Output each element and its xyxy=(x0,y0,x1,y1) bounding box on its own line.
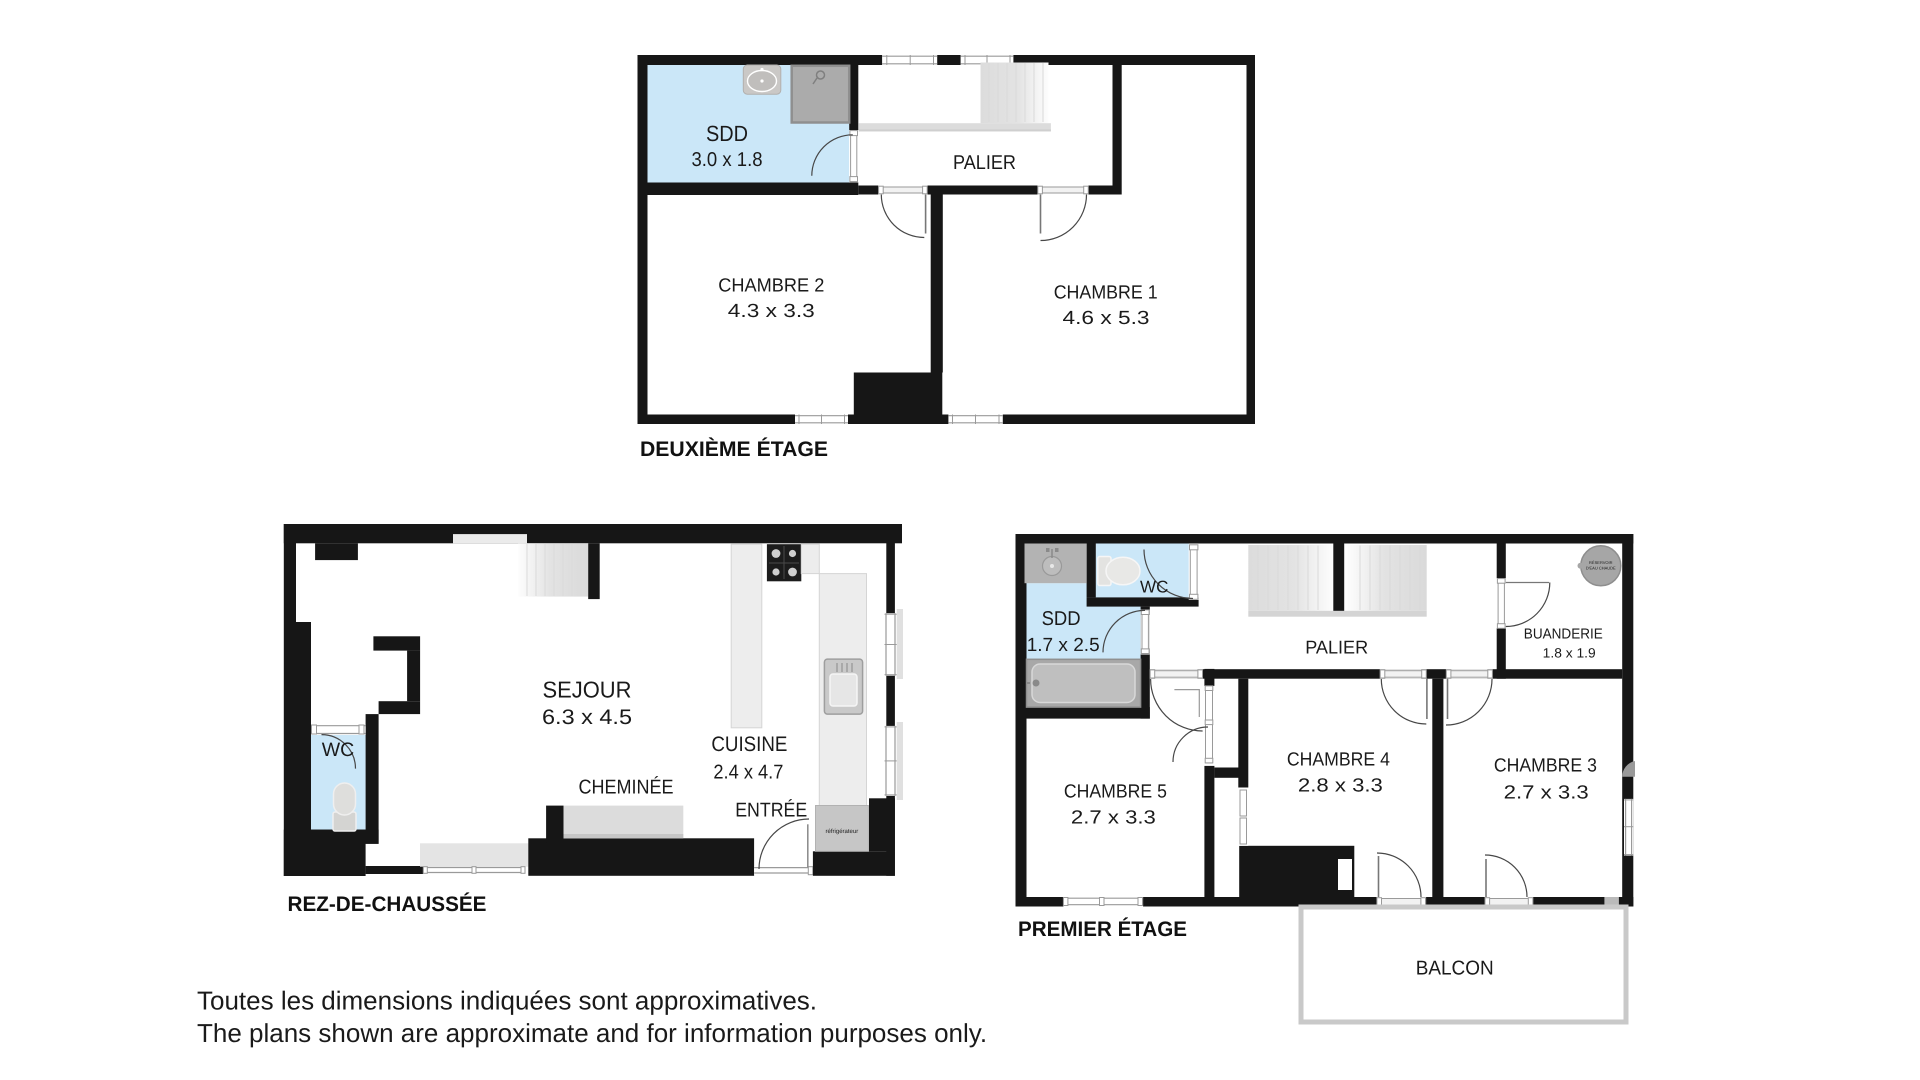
svg-text:4.6 x 5.3: 4.6 x 5.3 xyxy=(1063,308,1150,329)
svg-text:D'EAU CHAUDE: D'EAU CHAUDE xyxy=(1586,566,1616,571)
svg-text:REZ-DE-CHAUSSÉE: REZ-DE-CHAUSSÉE xyxy=(288,892,487,916)
svg-text:2.4 x 4.7: 2.4 x 4.7 xyxy=(713,762,783,784)
svg-text:CHAMBRE 5: CHAMBRE 5 xyxy=(1064,782,1167,803)
svg-text:3.0 x 1.8: 3.0 x 1.8 xyxy=(692,149,763,171)
svg-text:Toutes les dimensions indiquée: Toutes les dimensions indiquées sont app… xyxy=(197,986,817,1016)
svg-text:CHAMBRE 2: CHAMBRE 2 xyxy=(718,276,824,297)
svg-text:2.8 x 3.3: 2.8 x 3.3 xyxy=(1298,776,1383,797)
svg-text:BUANDERIE: BUANDERIE xyxy=(1524,627,1603,643)
svg-text:PALIER: PALIER xyxy=(1305,636,1368,657)
svg-text:RÉSERVOIR: RÉSERVOIR xyxy=(1589,560,1613,565)
svg-text:SDD: SDD xyxy=(706,121,748,146)
svg-text:The plans shown are approximat: The plans shown are approximate and for … xyxy=(197,1018,987,1048)
svg-text:PREMIER ÉTAGE: PREMIER ÉTAGE xyxy=(1018,917,1187,941)
svg-text:CHEMINÉE: CHEMINÉE xyxy=(579,776,674,799)
svg-text:BALCON: BALCON xyxy=(1416,957,1494,979)
svg-text:2.7 x 3.3: 2.7 x 3.3 xyxy=(1504,782,1589,803)
svg-text:CUISINE: CUISINE xyxy=(711,733,787,756)
svg-text:DEUXIÈME ÉTAGE: DEUXIÈME ÉTAGE xyxy=(640,437,828,461)
svg-text:réfrigérateur: réfrigérateur xyxy=(826,828,859,835)
svg-text:2.7 x 3.3: 2.7 x 3.3 xyxy=(1071,807,1156,828)
svg-text:1.8 x 1.9: 1.8 x 1.9 xyxy=(1543,646,1596,661)
svg-text:PALIER: PALIER xyxy=(953,152,1016,174)
svg-text:4.3 x 3.3: 4.3 x 3.3 xyxy=(728,301,815,322)
svg-text:WC: WC xyxy=(322,739,355,761)
svg-text:CHAMBRE 1: CHAMBRE 1 xyxy=(1054,283,1158,304)
svg-text:ENTRÉE: ENTRÉE xyxy=(735,799,807,822)
svg-text:CHAMBRE 3: CHAMBRE 3 xyxy=(1494,756,1597,777)
svg-text:CHAMBRE 4: CHAMBRE 4 xyxy=(1287,750,1390,771)
svg-text:6.3 x 4.5: 6.3 x 4.5 xyxy=(542,706,632,729)
svg-text:1.7 x 2.5: 1.7 x 2.5 xyxy=(1027,635,1100,656)
svg-text:SEJOUR: SEJOUR xyxy=(543,677,632,703)
svg-text:WC: WC xyxy=(1140,578,1168,597)
svg-text:SDD: SDD xyxy=(1042,608,1081,630)
